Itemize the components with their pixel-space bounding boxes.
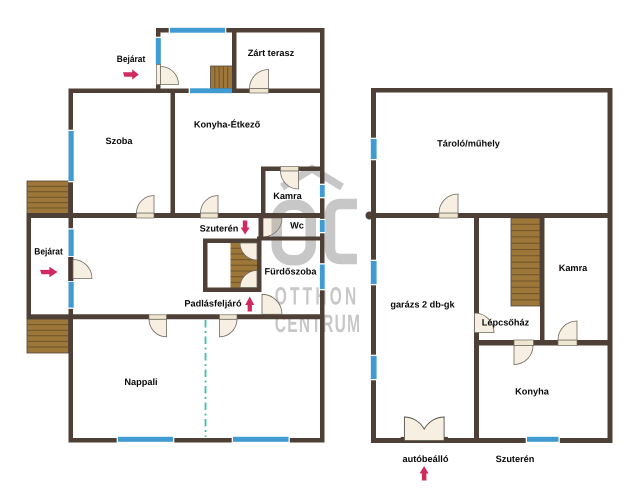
svg-text:Kamra: Kamra: [273, 191, 302, 201]
svg-text:Lépcsőház: Lépcsőház: [482, 318, 530, 328]
svg-text:garázs 2 db-gk: garázs 2 db-gk: [390, 300, 455, 310]
svg-text:Zárt terasz: Zárt terasz: [248, 48, 295, 58]
svg-text:Szuterén: Szuterén: [496, 454, 535, 464]
svg-text:Nappali: Nappali: [124, 377, 157, 387]
svg-text:Padlásfeljáró: Padlásfeljáró: [184, 299, 242, 309]
svg-text:Szoba: Szoba: [105, 136, 133, 146]
svg-text:Bejárat: Bejárat: [34, 247, 63, 257]
svg-text:OTTHON: OTTHON: [275, 283, 360, 311]
svg-text:Konyha: Konyha: [515, 387, 550, 397]
svg-text:Fürdőszoba: Fürdőszoba: [264, 267, 317, 277]
svg-text:Konyha-Étkező: Konyha-Étkező: [194, 119, 261, 130]
svg-text:CENTRUM: CENTRUM: [275, 310, 362, 338]
svg-text:Wc: Wc: [290, 221, 304, 231]
svg-text:autóbeálló: autóbeálló: [403, 454, 449, 464]
svg-text:Kamra: Kamra: [559, 263, 588, 273]
svg-text:Szuterén: Szuterén: [200, 224, 239, 234]
svg-text:Bejárat: Bejárat: [117, 54, 146, 64]
svg-text:Tároló/műhely: Tároló/műhely: [437, 139, 501, 149]
